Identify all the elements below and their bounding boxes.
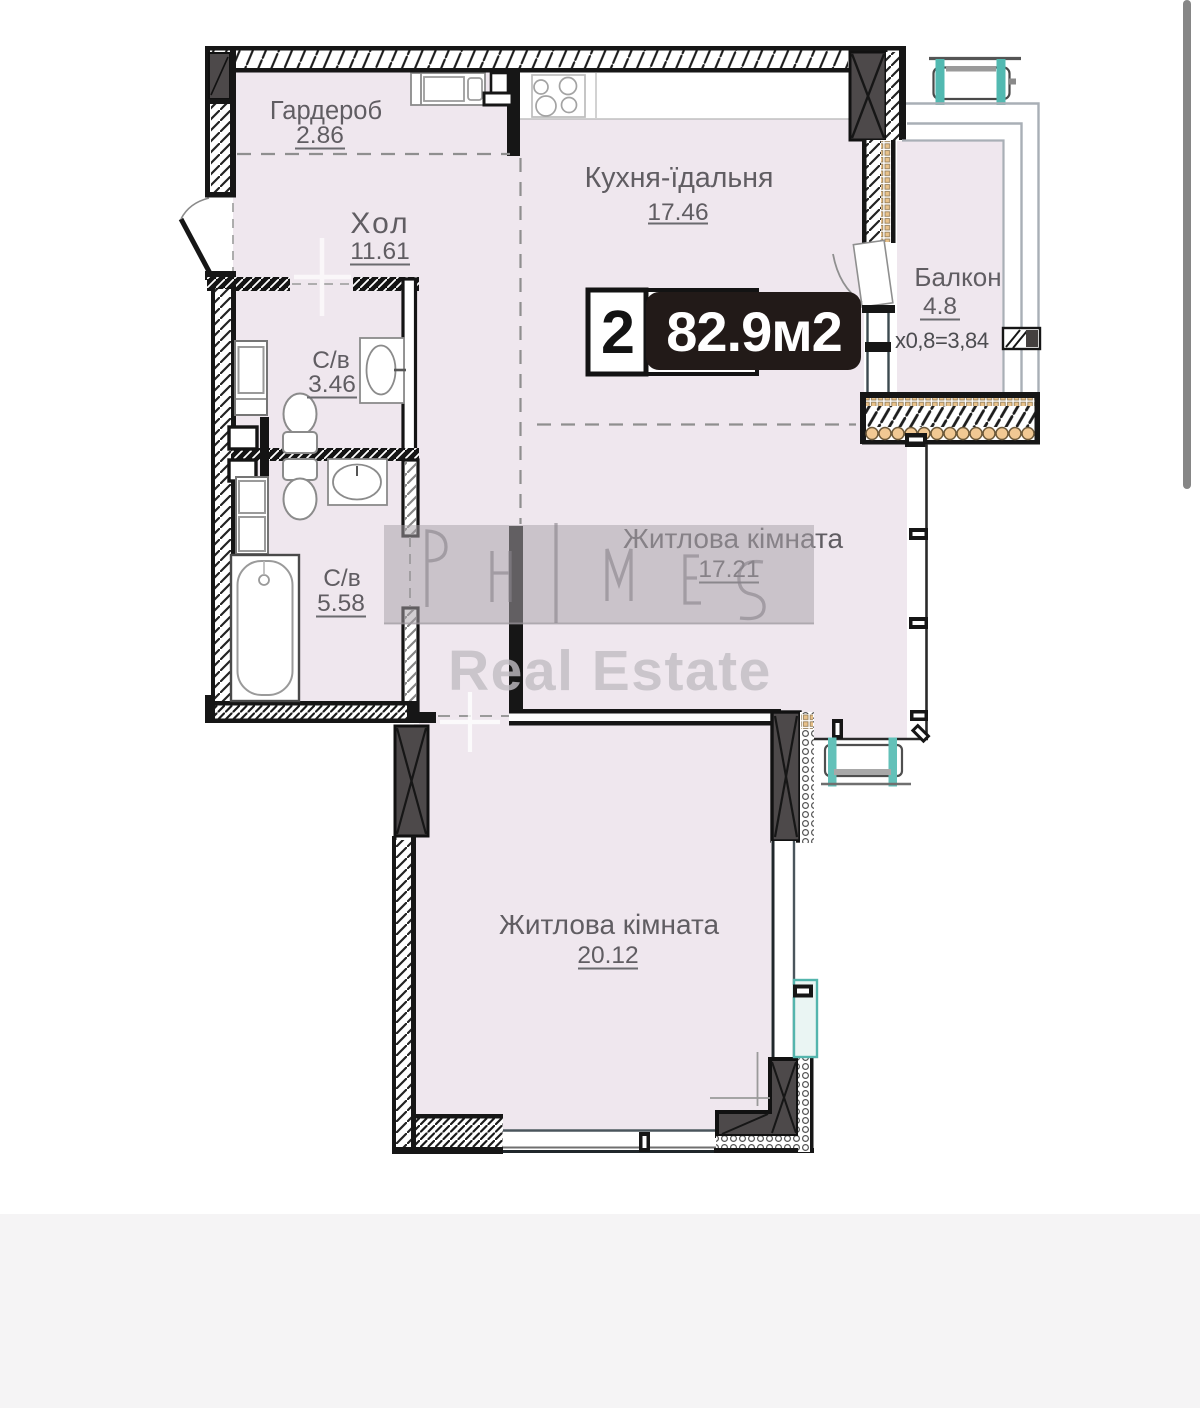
svg-text:5.58: 5.58 (317, 590, 365, 617)
svg-text:2: 2 (601, 298, 635, 366)
svg-text:82.9м2: 82.9м2 (666, 300, 842, 363)
svg-text:11.61: 11.61 (350, 238, 410, 265)
svg-text:2.86: 2.86 (296, 122, 344, 149)
svg-text:Житлова кімната: Житлова кімната (499, 909, 719, 940)
svg-text:Гардероб: Гардероб (270, 97, 382, 125)
svg-text:С/в: С/в (323, 565, 361, 592)
svg-text:17.46: 17.46 (647, 199, 708, 226)
svg-text:20.12: 20.12 (577, 942, 638, 969)
svg-text:4.8: 4.8 (923, 293, 957, 320)
svg-text:Хол: Хол (350, 207, 409, 240)
svg-text:х0,8=3,84: х0,8=3,84 (895, 328, 989, 353)
svg-text:Балкон: Балкон (914, 262, 1001, 292)
svg-text:С/в: С/в (312, 347, 350, 374)
svg-text:Real Estate: Real Estate (448, 639, 772, 703)
svg-text:Кухня-їдальня: Кухня-їдальня (585, 162, 774, 194)
svg-text:3.46: 3.46 (308, 371, 356, 398)
